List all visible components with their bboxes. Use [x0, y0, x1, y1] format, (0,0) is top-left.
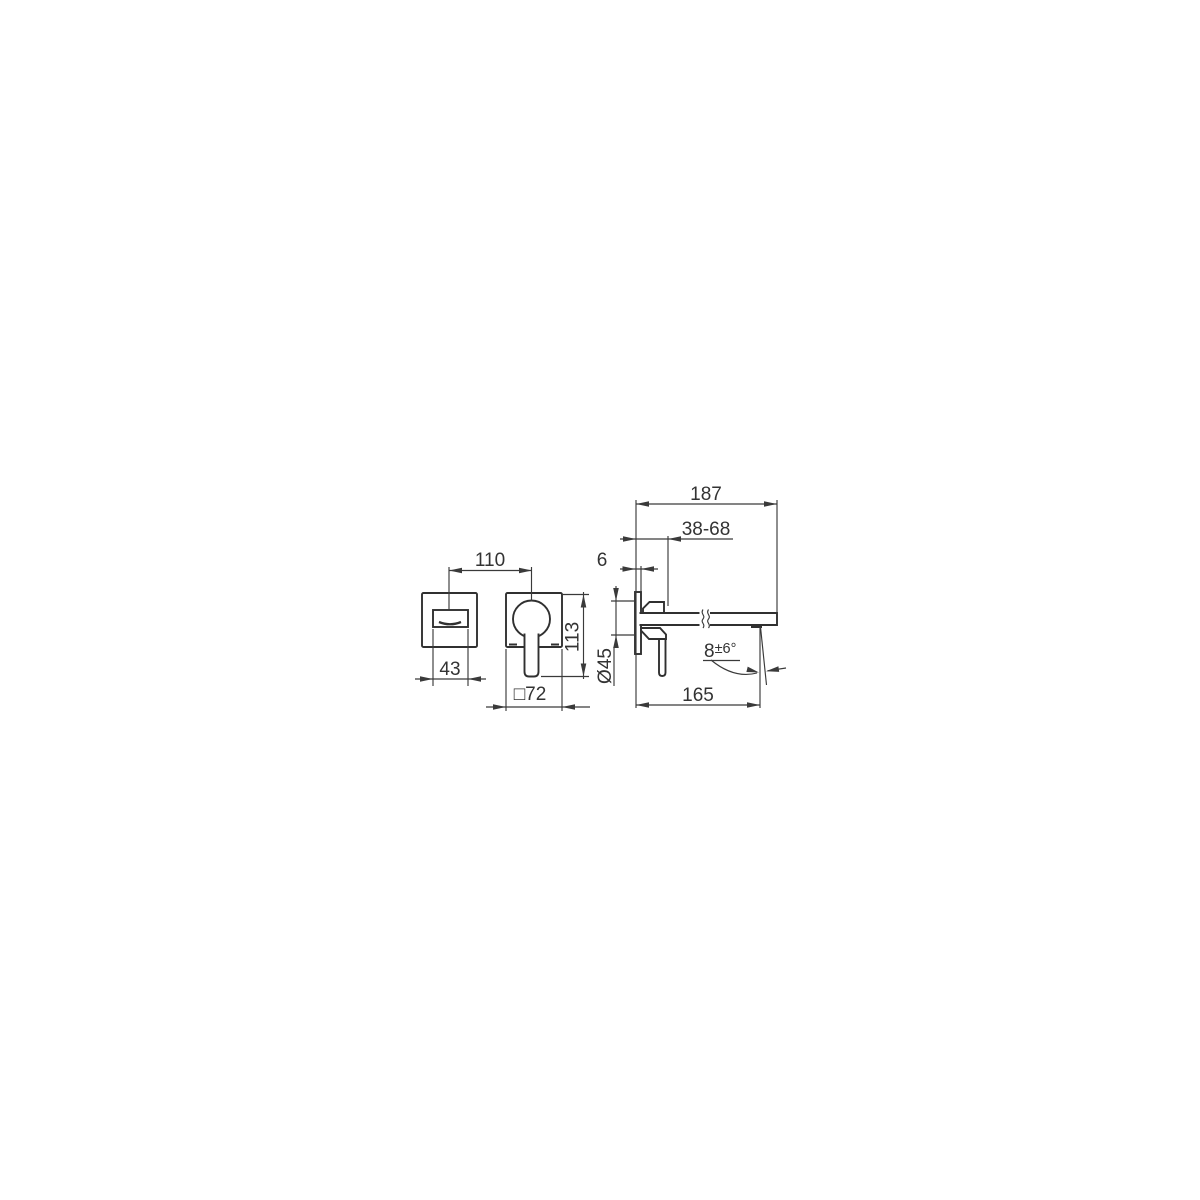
- arrowhead: [613, 588, 619, 601]
- dim-45-label: Ø45: [595, 648, 616, 684]
- dimension-total-projection: 187: [636, 484, 777, 708]
- arrowhead: [766, 666, 779, 672]
- arrowhead: [581, 595, 587, 608]
- technical-drawing: 110 43 113 □72 187: [0, 0, 1200, 1200]
- arrowhead: [764, 501, 777, 507]
- dimension-handle-spacing: 110: [449, 550, 532, 610]
- arrowhead: [747, 702, 760, 708]
- arrowhead: [562, 704, 575, 710]
- dimension-stream-angle: 8±6°: [703, 641, 786, 674]
- arrowhead: [636, 501, 649, 507]
- arrowhead: [581, 664, 587, 677]
- arrowhead: [746, 667, 759, 673]
- arrowhead: [641, 566, 654, 572]
- arrowhead: [449, 568, 462, 574]
- lever-stem-front: [525, 634, 539, 677]
- dim-43-label: 43: [439, 659, 460, 680]
- arrowhead: [623, 536, 636, 542]
- dim-72-label: □72: [514, 684, 547, 705]
- dimension-rough-in-diameter: Ø45: [595, 586, 635, 686]
- dimension-spout-width: 43: [415, 629, 486, 686]
- dim-110-label: 110: [475, 550, 505, 571]
- arrowhead: [623, 566, 636, 572]
- arrowhead: [420, 676, 433, 682]
- dimension-plate-height: 113: [541, 592, 589, 679]
- arrowhead: [468, 676, 481, 682]
- arrowhead: [636, 702, 649, 708]
- dim-6-label: 6: [597, 550, 608, 571]
- dim-113-label: 113: [563, 622, 584, 652]
- lever-knob-front: [513, 601, 550, 638]
- dim-38-68-label: 38-68: [682, 519, 731, 540]
- dim-187-label: 187: [690, 484, 722, 505]
- arrowhead: [613, 635, 619, 648]
- lever-handle-side: [659, 639, 666, 676]
- aerator-slot: [439, 622, 461, 624]
- arrowhead: [519, 568, 532, 574]
- angle-arc: [711, 660, 757, 674]
- spout-base-side: [643, 602, 664, 613]
- dimension-spout-projection: 165: [636, 685, 760, 708]
- lever-base-side: [641, 628, 666, 639]
- water-stream-line: [761, 627, 767, 685]
- dim-angle-label: 8±6°: [704, 641, 736, 662]
- arrowhead: [668, 536, 681, 542]
- dim-165-label: 165: [682, 685, 714, 706]
- dimension-plate-thickness: 6: [597, 550, 658, 592]
- view-handle-front: [506, 593, 562, 677]
- arrowhead: [493, 704, 506, 710]
